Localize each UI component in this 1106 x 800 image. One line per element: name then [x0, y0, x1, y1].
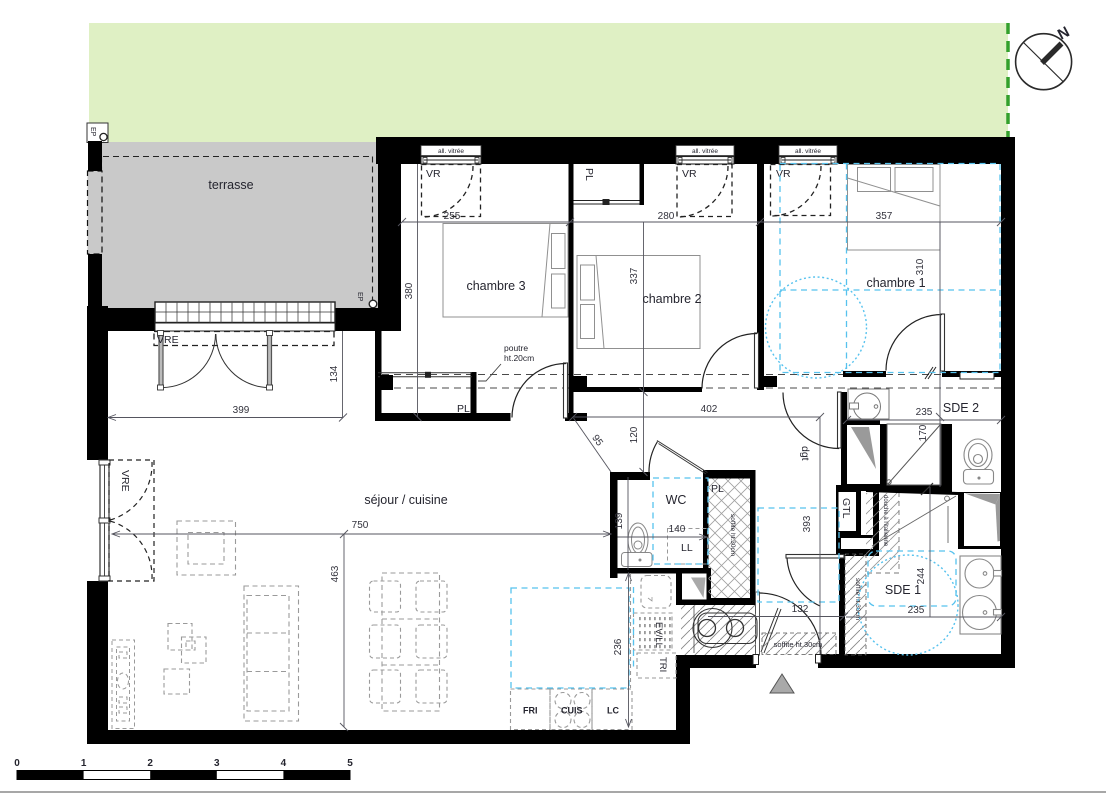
- svg-text:dgt: dgt: [799, 446, 811, 461]
- svg-text:1: 1: [81, 758, 87, 769]
- svg-text:5: 5: [347, 758, 353, 769]
- svg-text:236: 236: [613, 638, 624, 655]
- svg-text:soffite ht.30cm: soffite ht.30cm: [729, 514, 736, 556]
- svg-text:0: 0: [14, 758, 20, 769]
- svg-text:VRE: VRE: [119, 470, 131, 492]
- svg-text:VR: VR: [682, 168, 697, 180]
- svg-text:soffite ht.30cm: soffite ht.30cm: [854, 578, 861, 620]
- svg-text:120: 120: [629, 426, 640, 443]
- svg-text:TRI: TRI: [657, 657, 668, 672]
- svg-text:all. vitrée: all. vitrée: [692, 148, 718, 155]
- svg-text:PL: PL: [711, 483, 724, 495]
- svg-text:chambre 3: chambre 3: [466, 279, 525, 293]
- svg-text:chambre 1: chambre 1: [866, 276, 925, 290]
- svg-text:399: 399: [233, 405, 250, 416]
- svg-text:134: 134: [329, 365, 340, 382]
- svg-text:235: 235: [916, 407, 933, 418]
- svg-text:337: 337: [629, 267, 640, 284]
- svg-text:SDE 1: SDE 1: [885, 583, 921, 597]
- svg-text:EP: EP: [356, 292, 363, 302]
- svg-text:douche à l'italienne: douche à l'italienne: [882, 495, 888, 547]
- svg-text:LC: LC: [607, 706, 619, 716]
- svg-text:all. vitrée: all. vitrée: [795, 148, 821, 155]
- svg-text:139: 139: [614, 512, 625, 529]
- svg-text:CUIS: CUIS: [561, 706, 583, 716]
- svg-text:140: 140: [669, 524, 686, 535]
- svg-text:soffite ht.30cm: soffite ht.30cm: [774, 640, 823, 649]
- svg-text:EV/LL: EV/LL: [653, 622, 664, 648]
- svg-text:séjour / cuisine: séjour / cuisine: [364, 493, 447, 507]
- svg-text:310: 310: [915, 258, 926, 275]
- svg-text:VR: VR: [426, 168, 441, 180]
- svg-text:VR: VR: [776, 168, 791, 180]
- svg-text:EP: EP: [89, 127, 96, 137]
- svg-text:357: 357: [876, 211, 893, 222]
- svg-text:235: 235: [908, 605, 925, 616]
- svg-text:SDE 2: SDE 2: [943, 401, 979, 415]
- svg-text:2: 2: [147, 758, 153, 769]
- svg-text:WC: WC: [666, 493, 687, 507]
- svg-text:PL: PL: [583, 168, 595, 181]
- svg-text:393: 393: [802, 515, 813, 532]
- svg-text:LL: LL: [681, 542, 693, 554]
- svg-text:all. vitrée: all. vitrée: [438, 148, 464, 155]
- svg-text:132: 132: [792, 604, 809, 615]
- svg-text:poutre: poutre: [504, 343, 528, 353]
- svg-text:255: 255: [444, 211, 461, 222]
- svg-text:280: 280: [658, 211, 675, 222]
- svg-text:terrasse: terrasse: [208, 178, 253, 192]
- svg-text:VRE: VRE: [157, 334, 179, 346]
- svg-text:463: 463: [330, 565, 341, 582]
- svg-text:4: 4: [281, 758, 287, 769]
- svg-text:chambre 2: chambre 2: [642, 292, 701, 306]
- svg-text:244: 244: [916, 567, 927, 584]
- svg-text:FRI: FRI: [523, 706, 538, 716]
- svg-text:750: 750: [352, 520, 369, 531]
- svg-text:380: 380: [404, 282, 415, 299]
- svg-text:ht.20cm: ht.20cm: [504, 353, 534, 363]
- svg-text:PL: PL: [457, 403, 470, 415]
- svg-text:170: 170: [918, 424, 929, 441]
- svg-text:3: 3: [214, 758, 220, 769]
- svg-text:GTL: GTL: [840, 498, 852, 519]
- svg-text:402: 402: [701, 404, 718, 415]
